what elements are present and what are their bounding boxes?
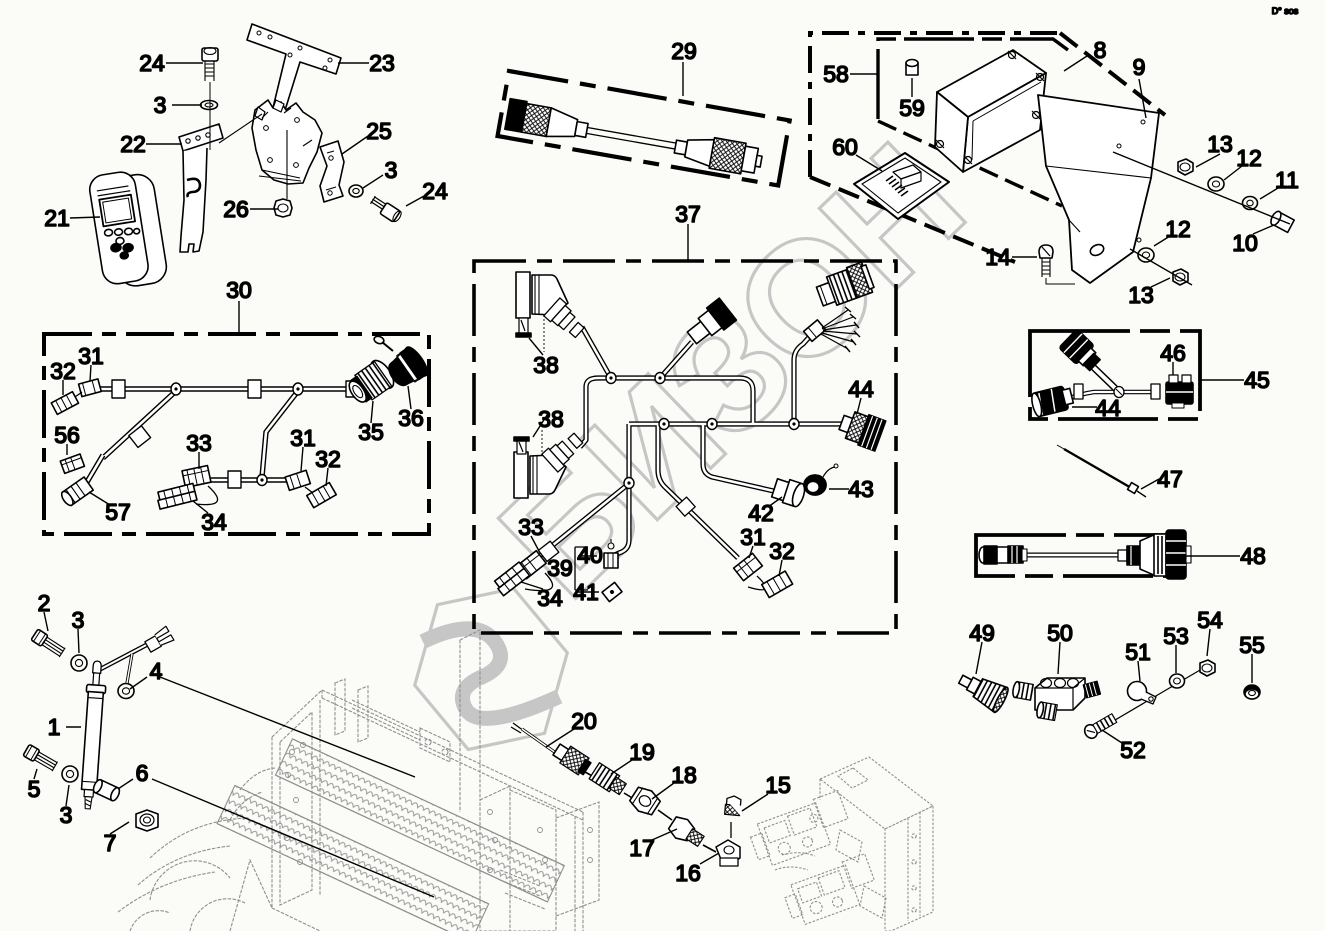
svg-text:47: 47 — [1157, 466, 1183, 492]
svg-text:25: 25 — [366, 118, 392, 144]
svg-text:33: 33 — [186, 430, 212, 456]
svg-text:59: 59 — [899, 95, 925, 121]
svg-text:49: 49 — [969, 620, 995, 646]
svg-text:13: 13 — [1207, 131, 1233, 157]
svg-text:46: 46 — [1160, 340, 1186, 366]
svg-text:13: 13 — [1128, 282, 1154, 308]
svg-text:33: 33 — [518, 514, 544, 540]
svg-text:10: 10 — [1232, 230, 1258, 256]
svg-text:7: 7 — [104, 830, 117, 856]
svg-text:19: 19 — [629, 739, 655, 765]
svg-text:26: 26 — [223, 196, 249, 222]
svg-text:18: 18 — [671, 762, 697, 788]
svg-text:44: 44 — [848, 376, 874, 402]
svg-text:21: 21 — [44, 205, 70, 231]
svg-text:54: 54 — [1197, 607, 1223, 633]
svg-text:60: 60 — [832, 134, 858, 160]
svg-text:41: 41 — [573, 579, 599, 605]
svg-text:37: 37 — [675, 201, 701, 227]
svg-text:6: 6 — [136, 760, 149, 786]
svg-text:34: 34 — [537, 585, 563, 611]
svg-text:4: 4 — [150, 658, 163, 684]
svg-text:3: 3 — [60, 802, 73, 828]
svg-text:D° sos: D° sos — [1272, 6, 1299, 16]
svg-text:24: 24 — [139, 50, 165, 76]
svg-text:31: 31 — [78, 343, 104, 369]
svg-text:3: 3 — [72, 607, 85, 633]
svg-text:36: 36 — [398, 405, 424, 431]
svg-text:51: 51 — [1125, 639, 1151, 665]
svg-text:14: 14 — [985, 244, 1011, 270]
svg-text:45: 45 — [1244, 367, 1270, 393]
svg-text:3: 3 — [385, 157, 398, 183]
svg-text:44: 44 — [1095, 395, 1121, 421]
svg-text:42: 42 — [748, 500, 774, 526]
svg-text:29: 29 — [671, 38, 697, 64]
svg-text:32: 32 — [769, 538, 795, 564]
svg-text:43: 43 — [848, 476, 874, 502]
svg-text:1: 1 — [48, 714, 61, 740]
svg-text:56: 56 — [54, 422, 80, 448]
svg-text:24: 24 — [422, 178, 448, 204]
svg-text:11: 11 — [1275, 167, 1299, 193]
svg-text:23: 23 — [369, 50, 395, 76]
svg-text:2: 2 — [38, 590, 51, 616]
svg-text:55: 55 — [1239, 632, 1265, 658]
svg-text:58: 58 — [823, 61, 849, 87]
svg-text:57: 57 — [105, 499, 131, 525]
svg-text:16: 16 — [675, 860, 701, 886]
svg-text:31: 31 — [740, 524, 766, 550]
svg-text:3: 3 — [154, 92, 167, 118]
svg-text:38: 38 — [538, 406, 564, 432]
svg-text:17: 17 — [629, 835, 655, 861]
svg-text:30: 30 — [226, 277, 252, 303]
svg-text:5: 5 — [28, 776, 41, 802]
svg-text:34: 34 — [201, 509, 227, 535]
svg-text:32: 32 — [50, 358, 76, 384]
svg-text:9: 9 — [1133, 54, 1146, 80]
svg-text:22: 22 — [120, 131, 146, 157]
svg-text:38: 38 — [533, 352, 559, 378]
svg-text:8: 8 — [1094, 37, 1107, 63]
svg-text:15: 15 — [765, 772, 791, 798]
svg-text:32: 32 — [315, 446, 341, 472]
svg-text:52: 52 — [1120, 737, 1146, 763]
svg-text:40: 40 — [577, 542, 603, 568]
svg-text:48: 48 — [1240, 543, 1266, 569]
svg-text:35: 35 — [358, 419, 384, 445]
svg-text:12: 12 — [1165, 216, 1191, 242]
svg-text:31: 31 — [290, 425, 316, 451]
svg-text:20: 20 — [571, 708, 597, 734]
svg-text:39: 39 — [547, 555, 573, 581]
svg-text:12: 12 — [1236, 145, 1262, 171]
svg-text:50: 50 — [1047, 620, 1073, 646]
svg-text:53: 53 — [1163, 623, 1189, 649]
